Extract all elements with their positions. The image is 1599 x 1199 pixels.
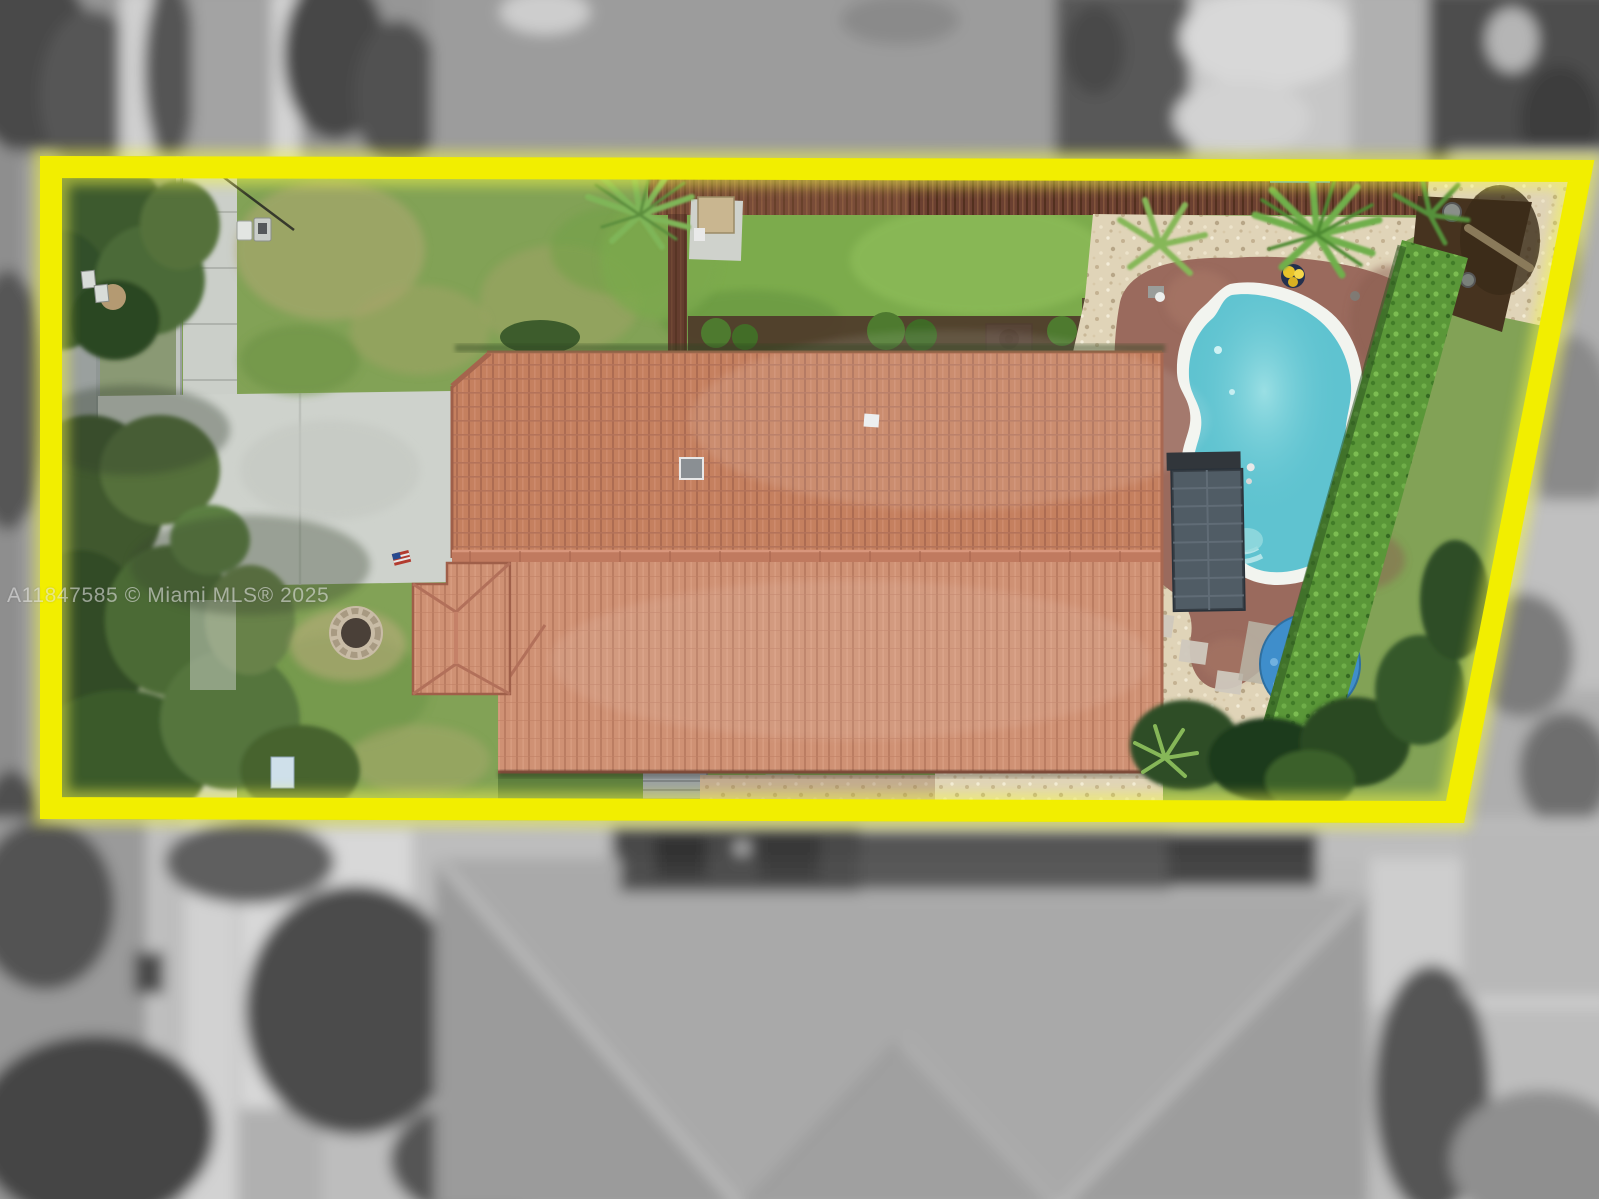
cooler (271, 757, 294, 788)
utility-pad (689, 197, 743, 261)
neighbor-house-roof (435, 858, 1368, 1199)
roof-vent-small (864, 414, 880, 428)
property-lot (10, 140, 1599, 840)
photo-canvas (0, 0, 1599, 1199)
mailbox-utility-boxes (237, 218, 271, 241)
roof-vent (680, 458, 703, 479)
house-roof (413, 330, 1210, 778)
aerial-listing-photo: A11847585 © Miami MLS® 2025 (0, 0, 1599, 1199)
fire-pit (329, 606, 383, 660)
roof-ridge (452, 551, 1162, 562)
